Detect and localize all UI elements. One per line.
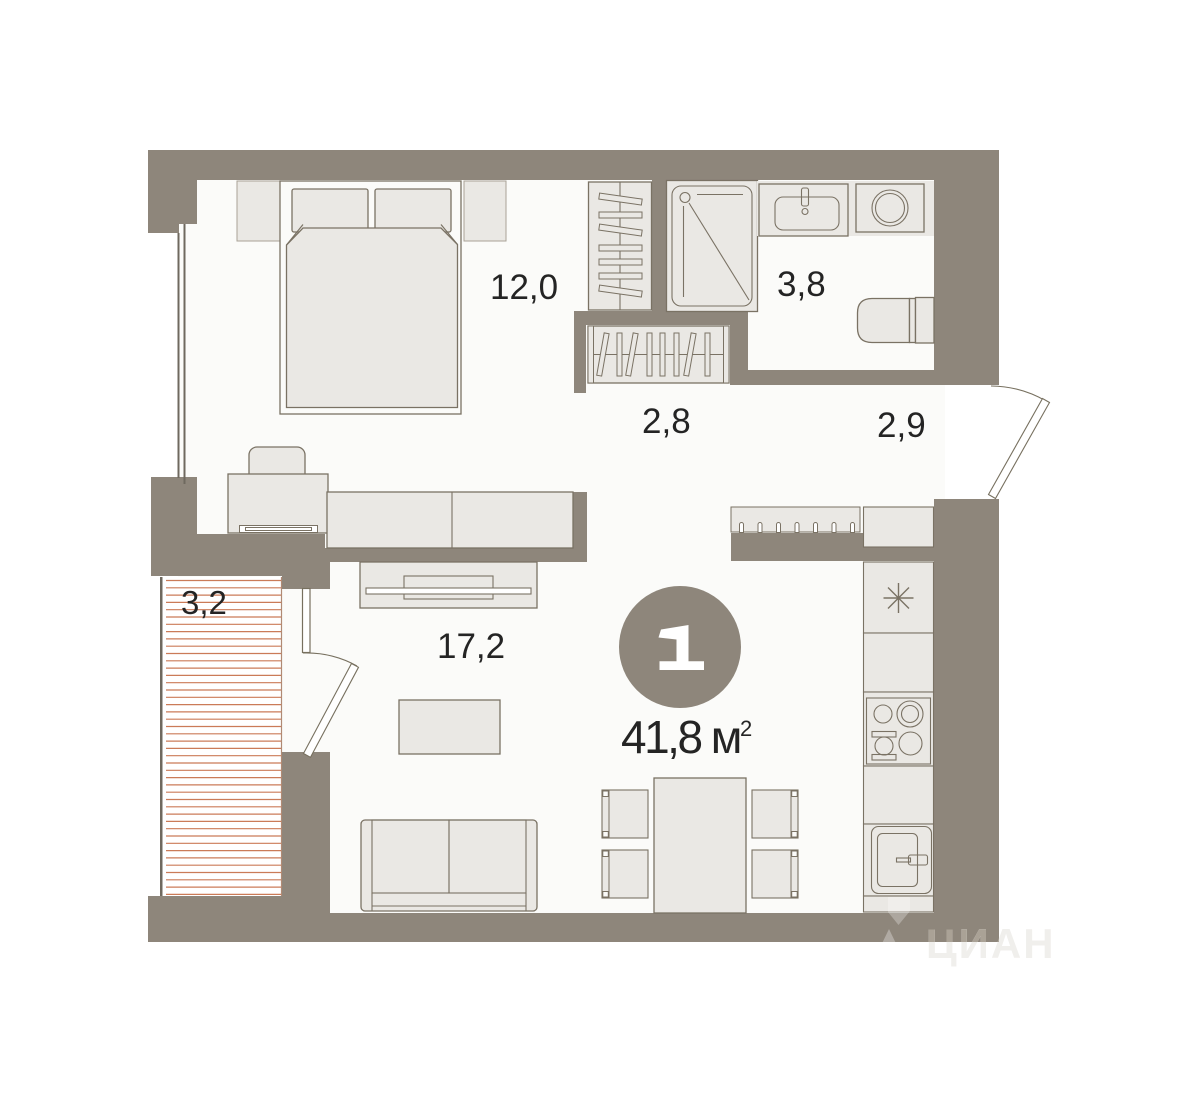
svg-text:3,2: 3,2 [181,584,227,621]
svg-text:41,8 м2: 41,8 м2 [621,711,752,763]
svg-text:2,9: 2,9 [877,406,926,445]
svg-text:3,8: 3,8 [777,265,826,304]
svg-text:2,8: 2,8 [642,402,691,441]
svg-text:12,0: 12,0 [490,268,558,307]
svg-text:17,2: 17,2 [437,627,505,666]
